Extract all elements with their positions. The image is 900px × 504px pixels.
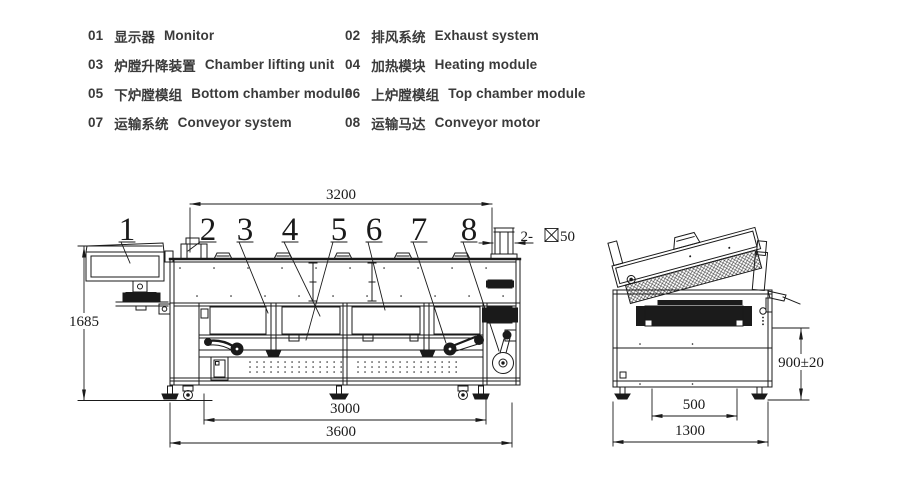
exhaust-duct-right (491, 228, 517, 259)
port-note-size: 50 (560, 229, 575, 245)
indicator-circle (760, 308, 766, 314)
end-view (606, 205, 800, 399)
dim-text-900: 900±20 (778, 355, 824, 371)
callout-7: 7 (411, 212, 428, 248)
dim-text-3000: 3000 (330, 401, 360, 417)
dim-text-500: 500 (683, 397, 706, 413)
dim-text-3600: 3600 (326, 424, 356, 440)
technical-drawing: 1 2 3 4 5 6 7 8 3200 1685 3000 3600 2- 5… (0, 0, 900, 504)
callout-4: 4 (282, 212, 299, 248)
electrical-box (211, 357, 228, 380)
dim-text-1685: 1685 (69, 314, 99, 330)
lifting-column-left (266, 303, 281, 357)
dim-text-1300: 1300 (675, 423, 705, 439)
leader-3 (237, 242, 268, 313)
dim-square-ports (479, 229, 558, 244)
monitor-assembly (86, 243, 173, 314)
callout-6: 6 (366, 212, 383, 248)
dim-text-3200: 3200 (326, 187, 356, 203)
drawing-sheet: 01 显示器 Monitor 02 排风系统 Exhaust system 03… (0, 0, 900, 504)
chamber-probes (309, 263, 376, 301)
callout-1: 1 (119, 212, 136, 248)
machine-body (170, 259, 520, 385)
lid-hinge (752, 241, 800, 304)
port-note-prefix: 2- (521, 229, 534, 245)
lid-tab (608, 241, 623, 266)
motor-compartment (488, 280, 516, 374)
callout-3: 3 (237, 212, 254, 248)
callout-8: 8 (461, 212, 478, 248)
lifting-column-right (420, 303, 435, 357)
callout-2: 2 (200, 212, 217, 248)
feet-casters (162, 386, 489, 400)
conveyor-pulley-left (205, 339, 244, 356)
open-lid (606, 205, 766, 305)
side-view (86, 228, 520, 400)
callout-5: 5 (331, 212, 348, 248)
heating-module-block (645, 303, 743, 327)
frame-internals (199, 303, 487, 385)
leader-5 (306, 242, 347, 340)
lid-latch (768, 291, 786, 301)
leader-6 (366, 242, 385, 310)
